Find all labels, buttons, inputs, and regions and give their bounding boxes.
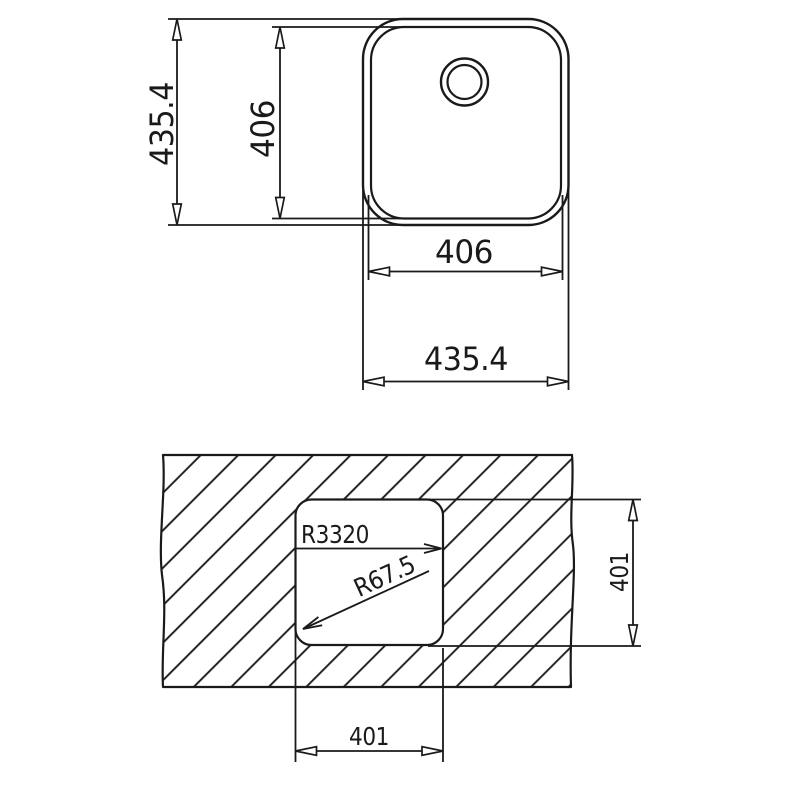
arrow-right-icon [422,747,443,756]
arrow-down-icon [276,198,285,219]
arrow-left-icon [296,747,317,756]
drawing-canvas: 435.4 406 406 [0,0,800,800]
arrow-right-icon [548,377,569,386]
dim-inner-width: 406 [369,195,563,280]
arrow-up-icon [276,27,285,48]
dim-label-cutout-width: 401 [349,722,389,751]
sink-top-view: 435.4 406 406 [143,19,569,390]
dim-outer-height: 435.4 [143,19,181,225]
dim-label-inner-height: 406 [244,100,282,158]
arrow-left-icon [369,267,390,276]
dim-label-outer-width: 435.4 [424,340,508,378]
dim-label-cutout-height: 401 [605,552,634,592]
drain-hole-inner [448,65,482,99]
sink-outer-rim [363,19,569,225]
dim-label-inner-width: 406 [435,233,493,271]
arrow-left-icon [363,377,384,386]
dim-inner-height: 406 [244,27,284,219]
sink-technical-drawing: 435.4 406 406 [0,0,800,800]
arrow-up-icon [173,19,182,40]
countertop-cutout-view: R3320 R67.5 401 [161,455,641,762]
sink-bowl-edge [371,27,561,219]
arrow-up-icon [629,500,638,521]
radius-label-r3320: R3320 [301,520,369,549]
dim-label-outer-height: 435.4 [143,82,181,166]
arrow-right-icon [542,267,563,276]
arrow-down-icon [173,204,182,225]
arrow-down-icon [629,625,638,646]
